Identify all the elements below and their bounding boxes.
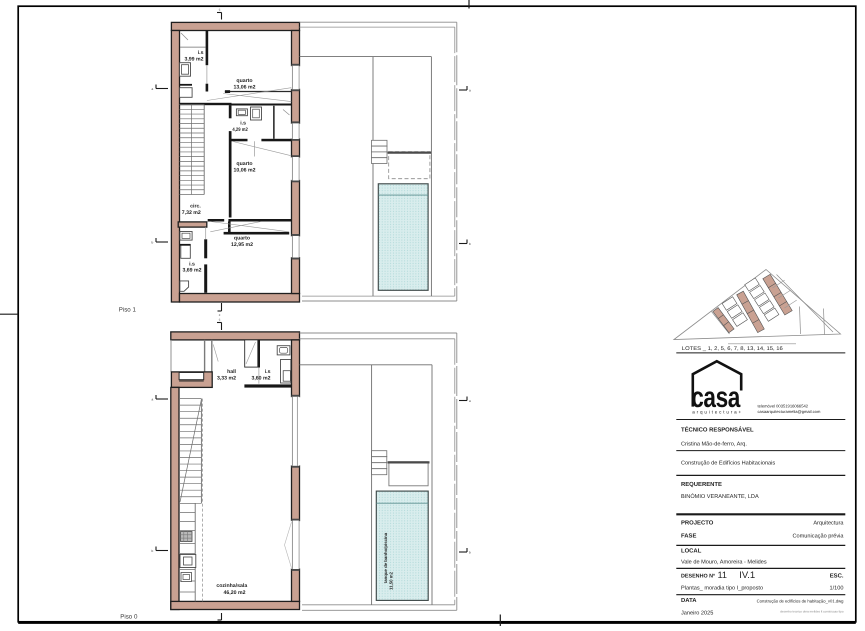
svg-text:arquitectura+: arquitectura+: [692, 409, 741, 414]
svg-text:i.s: i.s: [265, 369, 271, 375]
svg-text:a: a: [469, 89, 471, 93]
svg-text:BINÓMIO VERANEANTE, LDA: BINÓMIO VERANEANTE, LDA: [681, 493, 759, 500]
svg-text:Piso 0: Piso 0: [120, 614, 138, 621]
svg-text:b: b: [469, 242, 471, 246]
svg-text:a: a: [469, 399, 471, 403]
svg-text:b: b: [152, 549, 154, 553]
svg-text:10,06 m2: 10,06 m2: [234, 168, 256, 174]
svg-text:quarto: quarto: [236, 161, 252, 167]
svg-text:Comunicação prévia: Comunicação prévia: [793, 533, 845, 540]
svg-text:3,99 m2: 3,99 m2: [184, 56, 203, 62]
svg-text:7,32 m2: 7,32 m2: [182, 210, 201, 216]
svg-text:Arquitectura: Arquitectura: [813, 520, 844, 527]
svg-text:b: b: [152, 241, 154, 245]
svg-text:telemóvel 00351916066542: telemóvel 00351916066542: [758, 404, 809, 409]
svg-text:quarto: quarto: [236, 78, 252, 84]
svg-text:Construção de Edifícios Habita: Construção de Edifícios Habitacionais: [681, 460, 775, 467]
svg-text:i.s: i.s: [240, 120, 246, 126]
svg-text:Vale de Mouro, Amoreira - Mel: Vale de Mouro, Amoreira - Melides: [681, 559, 767, 566]
svg-text:b: b: [469, 551, 471, 555]
svg-text:Plantas_ moradia tipo I_propos: Plantas_ moradia tipo I_proposto: [681, 585, 763, 592]
svg-text:12,95 m2: 12,95 m2: [231, 242, 253, 248]
svg-text:Piso 1: Piso 1: [119, 307, 137, 314]
svg-text:LOTES _ 1, 2, 5, 6, 7, 8, 13,: LOTES _ 1, 2, 5, 6, 7, 8, 13, 14, 15, 16: [682, 346, 783, 352]
svg-text:desenho tecnico obra melides l: desenho tecnico obra melides lt construc…: [780, 610, 844, 614]
svg-text:3,33 m2: 3,33 m2: [217, 376, 236, 382]
svg-text:IV.1: IV.1: [739, 570, 755, 581]
svg-text:11: 11: [718, 570, 728, 580]
svg-text:DESENHO Nº: DESENHO Nº: [681, 574, 715, 580]
svg-text:a: a: [152, 398, 154, 402]
svg-text:Construção de edifícios de hab: Construção de edifícios de habitação_v01…: [757, 599, 845, 604]
svg-text:4,29 m2: 4,29 m2: [232, 127, 248, 133]
svg-text:circ.: circ.: [190, 203, 201, 209]
svg-text:FASE: FASE: [681, 533, 696, 540]
svg-text:3,69 m2: 3,69 m2: [182, 268, 201, 274]
svg-text:TÉCNICO RESPONSÁVEL: TÉCNICO RESPONSÁVEL: [681, 426, 754, 434]
svg-text:a: a: [152, 87, 154, 91]
svg-text:1/100: 1/100: [830, 585, 844, 592]
svg-text:quarto: quarto: [234, 236, 250, 242]
svg-text:Cristina Mão-de-ferro, Arq.: Cristina Mão-de-ferro, Arq.: [681, 440, 747, 447]
svg-text:46,20 m2: 46,20 m2: [224, 590, 246, 596]
svg-text:cozinha/sala: cozinha/sala: [216, 583, 247, 589]
svg-text:i.s: i.s: [198, 50, 204, 56]
svg-text:Janeiro 2025: Janeiro 2025: [681, 610, 713, 617]
svg-text:hall: hall: [227, 369, 236, 375]
svg-text:13,06 m2: 13,06 m2: [234, 85, 256, 91]
svg-text:LOCAL: LOCAL: [681, 548, 702, 555]
svg-text:DATA: DATA: [681, 597, 697, 604]
svg-text:REQUERENTE: REQUERENTE: [681, 481, 722, 488]
svg-text:tanque de banho/piscina: tanque de banho/piscina: [383, 532, 388, 583]
svg-text:11,50 m2: 11,50 m2: [389, 571, 394, 590]
svg-text:casaarquitecturamelia@gmail.co: casaarquitecturamelia@gmail.com: [758, 409, 821, 414]
svg-text:i.s: i.s: [189, 262, 195, 268]
svg-text:ESC.: ESC.: [830, 573, 844, 580]
svg-text:PROJECTO: PROJECTO: [681, 520, 714, 527]
svg-text:3,60 m2: 3,60 m2: [251, 376, 270, 382]
